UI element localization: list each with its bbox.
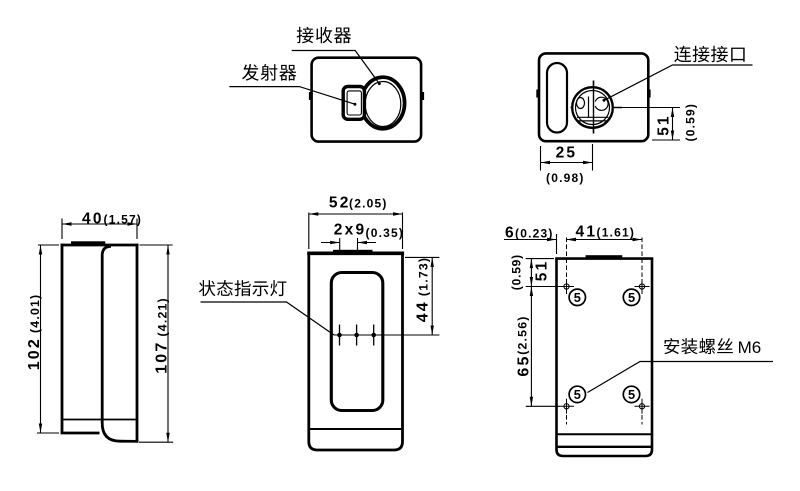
svg-text:(0.98): (0.98) <box>546 171 585 185</box>
svg-text:(0.35): (0.35) <box>366 226 405 240</box>
svg-text:51: 51 <box>534 260 551 282</box>
svg-text:(1.61): (1.61) <box>597 226 636 240</box>
svg-text:(1.57): (1.57) <box>104 212 143 226</box>
svg-text:107(4.21): 107(4.21) <box>153 297 170 374</box>
svg-text:(0.23): (0.23) <box>515 227 554 241</box>
svg-text:41: 41 <box>576 224 598 241</box>
svg-text:65: 65 <box>516 354 533 376</box>
svg-text:44(1.73): 44(1.73) <box>414 257 431 323</box>
svg-text:102(4.01): 102(4.01) <box>26 294 43 371</box>
svg-text:M6: M6 <box>738 338 762 357</box>
svg-text:5: 5 <box>628 290 635 305</box>
svg-text:25: 25 <box>556 145 578 162</box>
svg-text:(2.05): (2.05) <box>349 197 388 211</box>
svg-text:(2.56): (2.56) <box>515 315 529 354</box>
svg-text:(0.59): (0.59) <box>683 103 697 142</box>
svg-text:(0.59): (0.59) <box>509 254 523 290</box>
svg-text:5: 5 <box>574 387 581 402</box>
svg-text:5: 5 <box>574 290 581 305</box>
svg-text:40: 40 <box>82 210 104 227</box>
svg-text:5: 5 <box>628 387 635 402</box>
svg-text:2x9: 2x9 <box>334 222 366 239</box>
svg-text:52: 52 <box>329 195 351 212</box>
svg-text:51: 51 <box>655 114 672 136</box>
